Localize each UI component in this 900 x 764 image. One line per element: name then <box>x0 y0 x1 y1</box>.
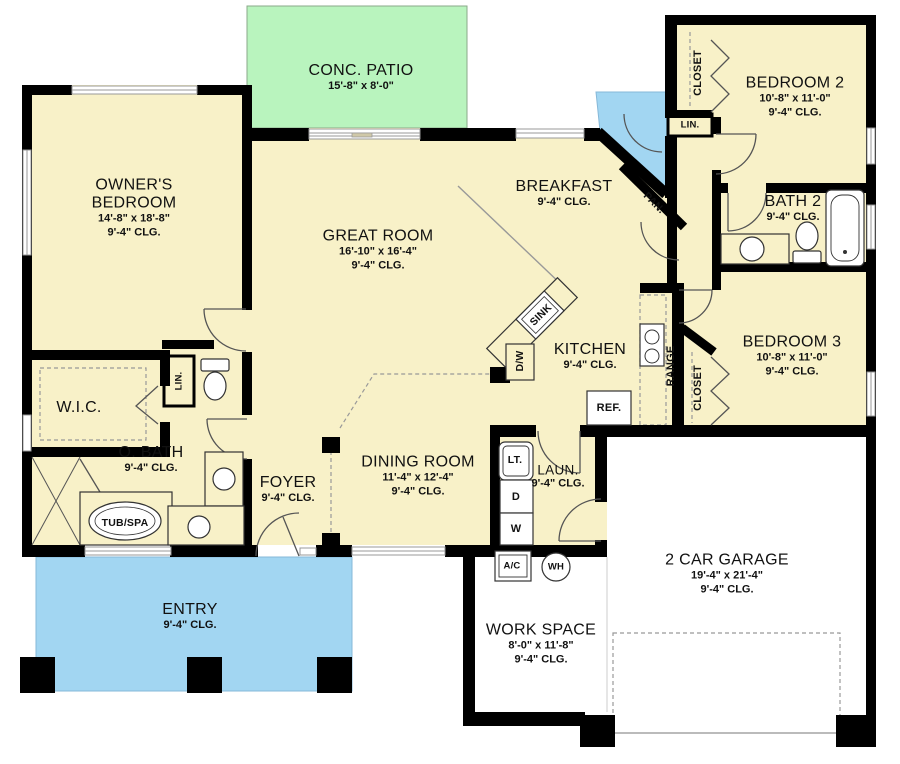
room-label-kitchen: KITCHEN 9'-4" CLG. <box>554 341 626 373</box>
laundry-tub-label: LT. <box>508 454 522 466</box>
room-label-laundry: LAUN. 9'-4" CLG. <box>531 463 584 492</box>
floor-plan: CONC. PATIO 15'-8" x 8'-0" OWNER'S BEDRO… <box>0 0 900 764</box>
room-label-patio: CONC. PATIO 15'-8" x 8'-0" <box>309 62 414 94</box>
washer-label: W <box>511 523 522 535</box>
bath2-toilet-tank <box>793 251 821 263</box>
room-label-workspace: WORK SPACE 8'-0" x 11'-8" 9'-4" CLG. <box>486 621 596 666</box>
room-label-great-room: GREAT ROOM 16'-10" x 16'-4" 9'-4" CLG. <box>323 227 434 272</box>
room-label-foyer: FOYER 9'-4" CLG. <box>260 474 317 506</box>
room-label-obath: O. BATH 9'-4" CLG. <box>119 444 184 476</box>
bath2-toilet-bowl <box>796 222 818 250</box>
refrigerator-label: REF. <box>597 402 622 414</box>
toilet-tank <box>201 359 229 371</box>
garage-door-dashed <box>613 633 840 733</box>
room-label-dining: DINING ROOM 11'-4" x 12'-4" 9'-4" CLG. <box>361 453 475 498</box>
dryer-label: D <box>512 491 520 503</box>
room-label-bedroom2: BEDROOM 2 10'-8" x 11'-0" 9'-4" CLG. <box>746 74 845 119</box>
tub-spa-label: TUB/SPA <box>102 517 149 529</box>
closet2-label: CLOSET <box>692 50 704 96</box>
bath2-sink <box>740 237 764 261</box>
room-label-bath2: BATH 2 9'-4" CLG. <box>765 193 822 225</box>
vanity-sink-2 <box>188 516 210 538</box>
linen-obath-label: LIN. <box>174 372 185 391</box>
room-label-owners-bedroom: OWNER'S BEDROOM 14'-8" x 18'-8" 9'-4" CL… <box>64 176 204 239</box>
room-label-bedroom3: BEDROOM 3 10'-8" x 11'-0" 9'-4" CLG. <box>743 333 842 378</box>
ac-label: A/C <box>504 561 521 572</box>
room-label-entry: ENTRY 9'-4" CLG. <box>162 601 217 633</box>
dishwasher-label: D/W <box>514 350 526 371</box>
room-label-garage: 2 CAR GARAGE 19'-4" x 21'-4" 9'-4" CLG. <box>665 551 789 596</box>
toilet-bowl <box>204 372 226 400</box>
room-label-wic: W.I.C. <box>56 399 101 417</box>
closet3-label: CLOSET <box>692 365 704 411</box>
linen2-label: LIN. <box>681 120 700 131</box>
room-label-breakfast: BREAKFAST 9'-4" CLG. <box>516 178 613 210</box>
vanity-sink <box>213 468 235 490</box>
water-heater-label: WH <box>548 562 564 573</box>
range-label: RANGE <box>665 346 677 387</box>
